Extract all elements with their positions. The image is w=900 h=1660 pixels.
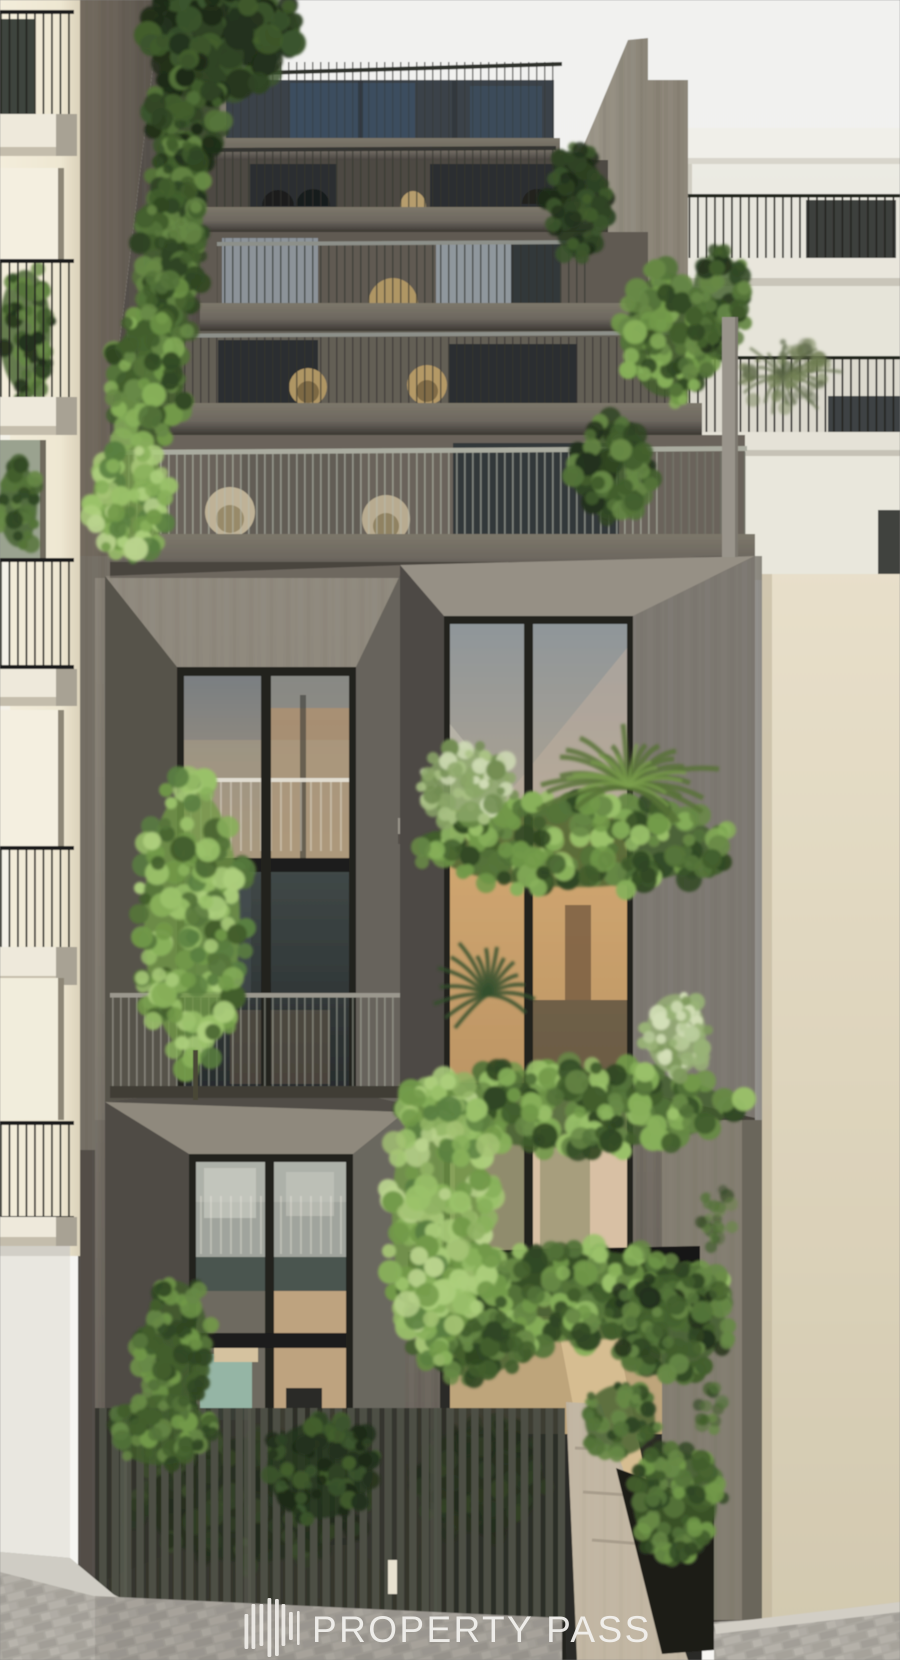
svg-text:PROPERTY PASS: PROPERTY PASS: [312, 1609, 652, 1650]
